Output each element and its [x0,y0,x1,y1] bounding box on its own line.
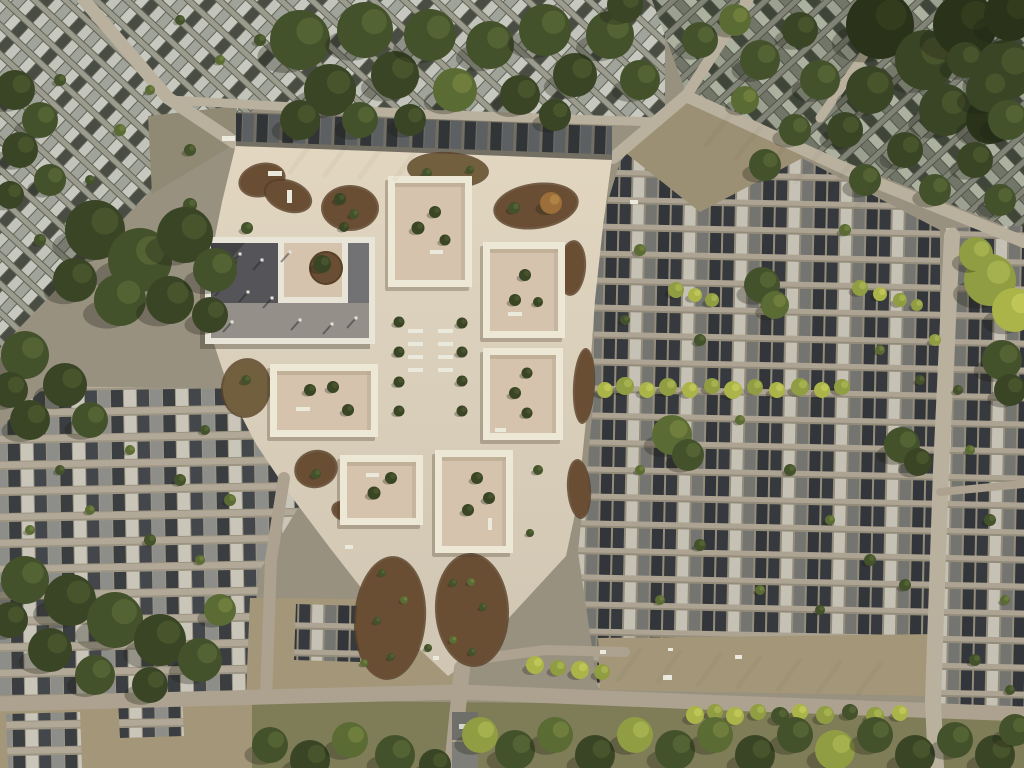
warm-cast-overlay [0,0,1024,768]
aerial-photograph [0,0,1024,768]
photo-layers [0,0,1024,768]
aerial-photo-frame [0,0,1024,768]
